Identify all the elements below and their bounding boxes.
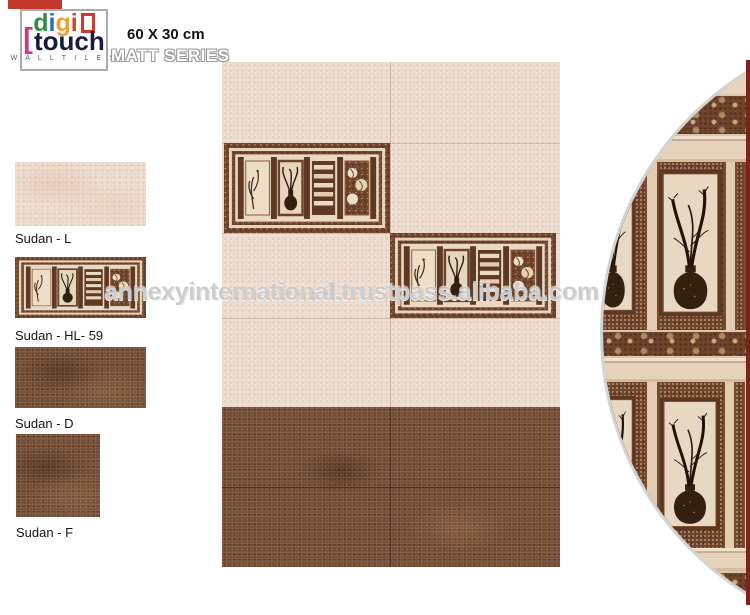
vase-panel xyxy=(659,170,722,316)
vase-panel-partial xyxy=(600,174,635,314)
bracket-icon: [ xyxy=(23,28,33,50)
decor-scroll-band xyxy=(603,94,750,136)
swatch-label: Sudan - HL- 59 xyxy=(15,328,103,343)
tile-joint xyxy=(222,318,560,319)
brand-tagline: W A L L T I L E S xyxy=(11,55,118,62)
decor-panel-row xyxy=(603,162,750,330)
right-edge-maroon-bar xyxy=(746,60,750,605)
swatch-label: Sudan - F xyxy=(16,525,73,540)
swatch-sudan-f xyxy=(16,434,100,517)
red-accent-bar xyxy=(8,0,62,9)
tile-joint xyxy=(222,487,560,488)
tile-catalog-sheet: d i g i [ touch W A L L T I L E S 60 X 3… xyxy=(0,0,750,615)
brand-word-touch: [ touch xyxy=(23,30,104,52)
decor-panel-row xyxy=(603,382,750,548)
frame-band xyxy=(603,358,750,382)
pillar-strip xyxy=(724,162,737,330)
vase-panel-partial xyxy=(600,396,635,534)
swatch-label: Sudan - D xyxy=(15,416,74,431)
frame-band xyxy=(603,136,750,162)
decor-scroll-band xyxy=(603,571,750,615)
wall-render-panel xyxy=(222,62,560,567)
pillar-strip xyxy=(723,382,736,548)
series-label: MATT SERIES xyxy=(111,46,230,66)
pillar-strip xyxy=(645,382,659,548)
swatch-label: Sudan - L xyxy=(15,231,71,246)
tile-size-label: 60 X 30 cm xyxy=(127,26,205,43)
watermark-text: annexyinternational.trustpass.alibaba.co… xyxy=(104,278,599,307)
brand-logo: d i g i [ touch W A L L T I L E S xyxy=(20,9,108,71)
frame-band xyxy=(603,548,750,571)
swatch-sudan-l xyxy=(15,162,146,226)
highlight-strip-upper xyxy=(224,143,390,233)
pillar-strip xyxy=(645,162,659,330)
brand-word-touch-text: touch xyxy=(34,30,105,52)
zoom-detail-circle xyxy=(600,25,750,615)
decor-scroll-band xyxy=(603,330,750,358)
vase-panel xyxy=(660,398,720,530)
swatch-sudan-d xyxy=(15,347,146,408)
